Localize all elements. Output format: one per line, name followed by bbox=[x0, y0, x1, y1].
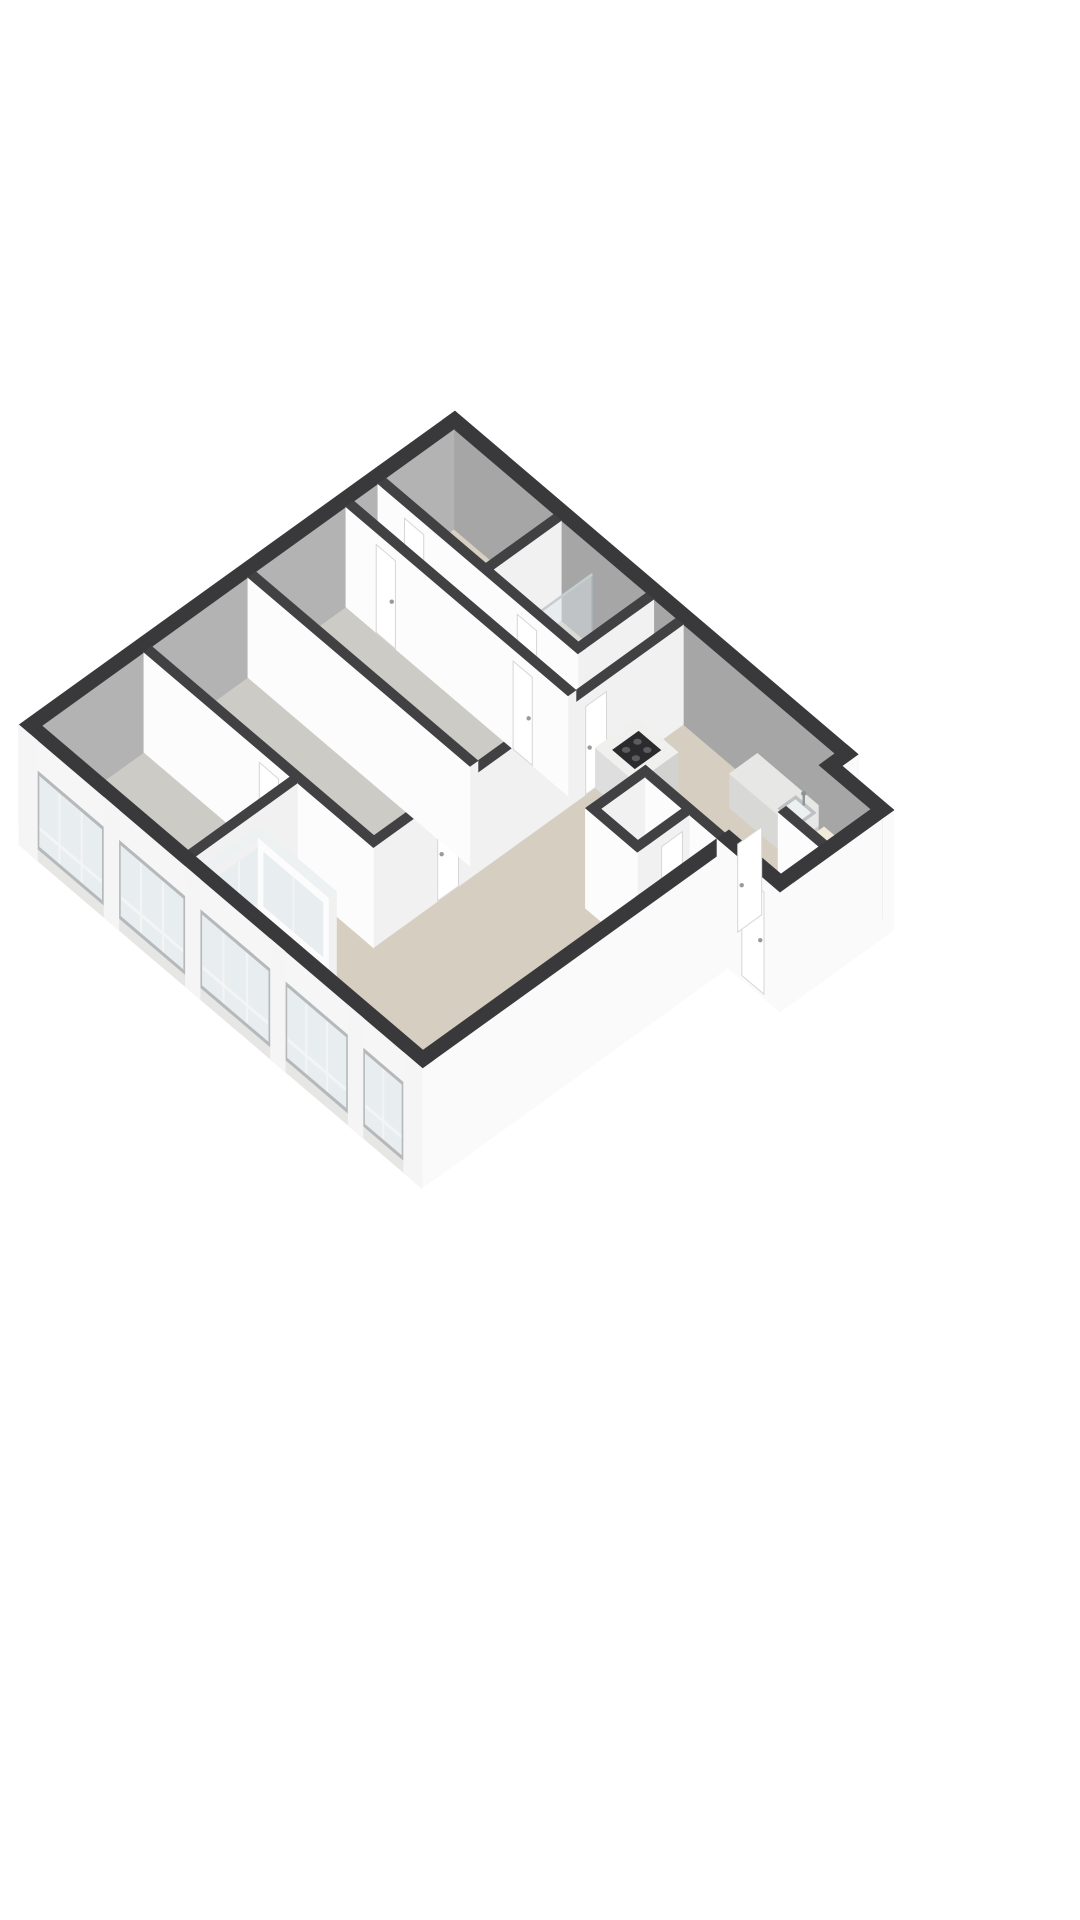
door-room1-b bbox=[513, 661, 532, 765]
door-room1-a bbox=[376, 545, 395, 649]
floorplan-canvas bbox=[0, 0, 1080, 1920]
floorplan-3d-view bbox=[0, 0, 1080, 1920]
door-living-wing bbox=[738, 827, 762, 932]
